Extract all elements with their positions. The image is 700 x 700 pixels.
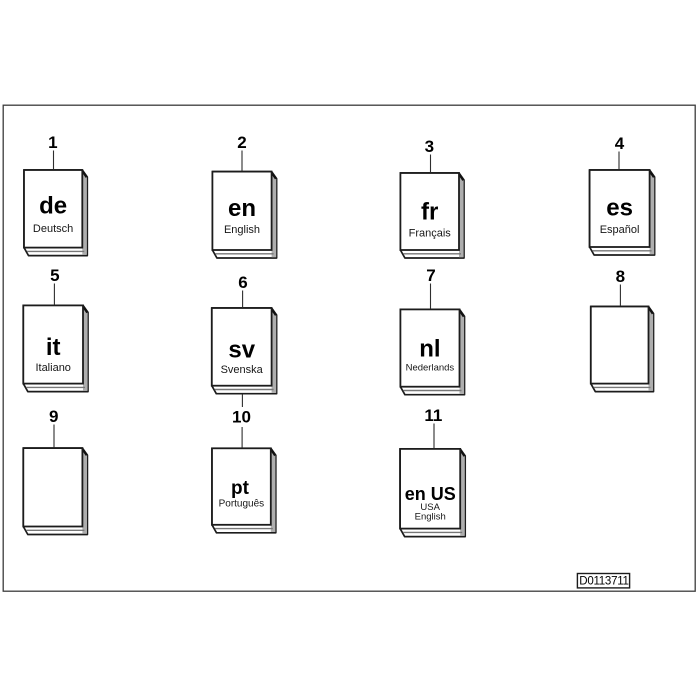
svg-text:3: 3 xyxy=(425,137,434,156)
svg-text:Português: Português xyxy=(219,499,265,510)
svg-text:9: 9 xyxy=(49,407,58,426)
svg-text:4: 4 xyxy=(615,134,625,153)
svg-text:en US: en US xyxy=(405,484,456,504)
svg-text:it: it xyxy=(46,334,61,361)
svg-text:11: 11 xyxy=(424,406,442,425)
svg-text:10: 10 xyxy=(232,408,251,427)
svg-text:7: 7 xyxy=(426,266,435,285)
svg-text:sv: sv xyxy=(228,337,255,364)
svg-text:Français: Français xyxy=(409,228,452,240)
svg-text:6: 6 xyxy=(238,273,247,292)
svg-text:English: English xyxy=(224,224,260,236)
svg-text:Español: Español xyxy=(600,224,640,236)
svg-text:English: English xyxy=(415,512,446,523)
svg-text:Svenska: Svenska xyxy=(221,364,264,376)
svg-text:Deutsch: Deutsch xyxy=(33,223,73,235)
svg-text:fr: fr xyxy=(421,199,438,226)
svg-text:pt: pt xyxy=(231,478,250,499)
svg-text:Italiano: Italiano xyxy=(35,362,70,374)
svg-text:es: es xyxy=(606,195,633,222)
svg-text:1: 1 xyxy=(48,133,57,152)
svg-text:en: en xyxy=(228,195,256,222)
svg-text:nl: nl xyxy=(419,336,440,363)
svg-text:8: 8 xyxy=(616,267,625,286)
svg-text:D0113711: D0113711 xyxy=(579,576,628,588)
svg-text:5: 5 xyxy=(50,266,59,285)
svg-text:Nederlands: Nederlands xyxy=(406,363,455,374)
svg-text:2: 2 xyxy=(237,133,246,152)
svg-text:de: de xyxy=(39,193,67,220)
